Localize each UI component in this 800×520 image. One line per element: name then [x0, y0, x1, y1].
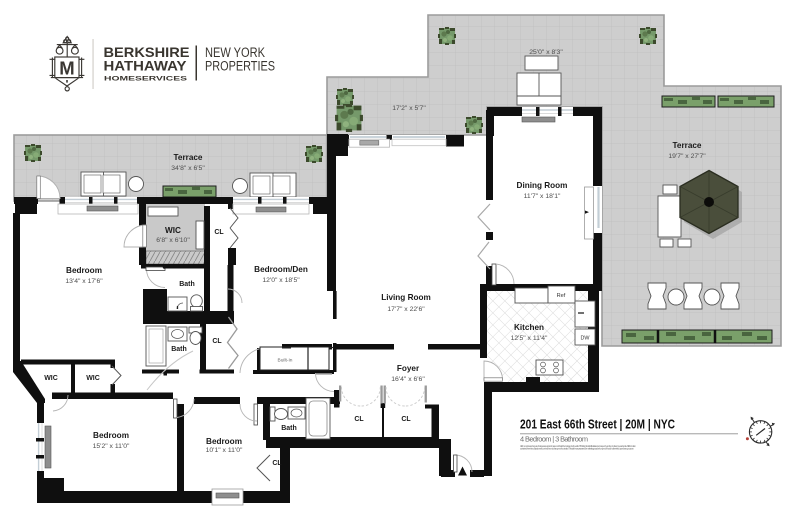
svg-text:Bath: Bath	[171, 346, 187, 353]
svg-text:M: M	[59, 58, 74, 79]
svg-text:19'7" x 27'7": 19'7" x 27'7"	[668, 153, 706, 160]
svg-text:HATHAWAY: HATHAWAY	[104, 59, 187, 74]
svg-text:Dining Room: Dining Room	[517, 181, 568, 190]
svg-text:CL: CL	[212, 338, 222, 345]
svg-text:CL: CL	[214, 229, 224, 236]
svg-text:6'8" x 6'10": 6'8" x 6'10"	[156, 237, 190, 244]
svg-text:Kitchen: Kitchen	[514, 323, 544, 332]
svg-text:25'0" x 8'3": 25'0" x 8'3"	[529, 49, 563, 56]
svg-text:WIC: WIC	[165, 226, 181, 235]
svg-text:Living Room: Living Room	[381, 293, 431, 302]
svg-text:Foyer: Foyer	[397, 364, 420, 373]
svg-text:Ref: Ref	[557, 293, 566, 299]
svg-text:34'8" x 6'5": 34'8" x 6'5"	[171, 165, 205, 172]
svg-text:Bedroom: Bedroom	[206, 437, 242, 446]
svg-text:CL: CL	[272, 460, 282, 467]
svg-text:13'4" x 17'6": 13'4" x 17'6"	[65, 278, 103, 285]
svg-text:12'0" x 18'5": 12'0" x 18'5"	[262, 277, 300, 284]
svg-text:DW: DW	[581, 336, 591, 342]
svg-text:201 East 66th Street | 20M | N: 201 East 66th Street | 20M | NYC	[520, 418, 675, 432]
svg-text:Built-In: Built-In	[278, 358, 293, 364]
svg-text:11'7" x 18'1": 11'7" x 18'1"	[524, 193, 561, 200]
svg-text:HOMESERVICES: HOMESERVICES	[104, 75, 188, 82]
svg-text:Bath: Bath	[179, 281, 195, 288]
svg-text:CL: CL	[401, 416, 411, 423]
svg-text:WIC: WIC	[86, 375, 100, 382]
svg-text:Terrace: Terrace	[673, 141, 702, 150]
svg-text:Bedroom: Bedroom	[66, 266, 102, 275]
svg-text:12'5" x 11'4": 12'5" x 11'4"	[511, 335, 548, 342]
svg-text:Terrace: Terrace	[174, 153, 203, 162]
svg-text:10'1" x 11'0": 10'1" x 11'0"	[206, 447, 243, 454]
svg-text:WIC: WIC	[44, 375, 58, 382]
svg-text:15'2" x 11'0": 15'2" x 11'0"	[93, 443, 130, 450]
svg-text:17'7" x 22'6": 17'7" x 22'6"	[387, 306, 425, 313]
svg-text:PROPERTIES: PROPERTIES	[205, 59, 275, 74]
svg-text:Bath: Bath	[281, 425, 297, 432]
svg-text:CL: CL	[354, 416, 364, 423]
svg-text:16'4" x 6'6": 16'4" x 6'6"	[391, 376, 425, 383]
svg-text:contained herein is subject to: contained herein is subject to errors, o…	[520, 447, 634, 450]
svg-text:17'2" x 5'7": 17'2" x 5'7"	[392, 105, 426, 112]
svg-text:Bedroom/Den: Bedroom/Den	[254, 265, 308, 274]
svg-text:Bedroom: Bedroom	[93, 431, 129, 440]
svg-text:4 Bedroom | 3 Bathroom: 4 Bedroom | 3 Bathroom	[520, 435, 588, 444]
